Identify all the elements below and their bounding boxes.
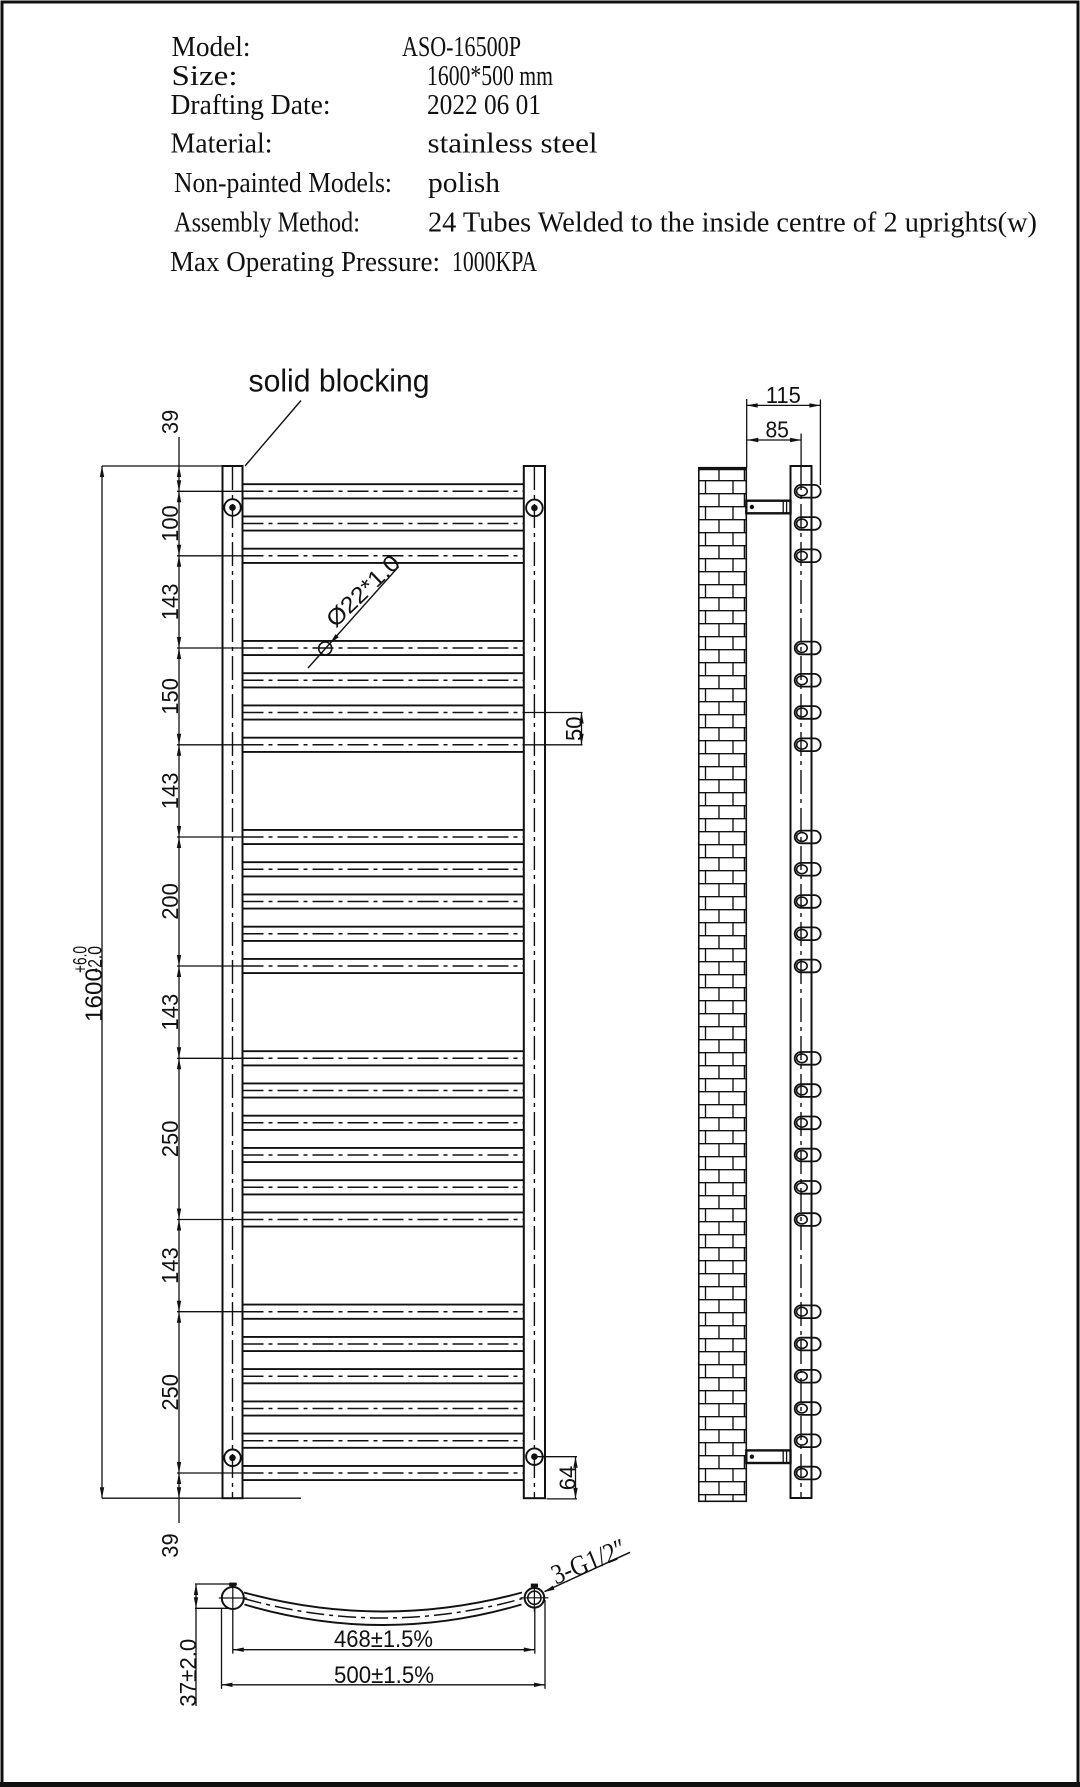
svg-text:Max Operating Pressure:: Max Operating Pressure:: [170, 246, 440, 278]
svg-text:150: 150: [157, 678, 183, 715]
svg-text:39: 39: [157, 410, 183, 434]
svg-text:468±1.5%: 468±1.5%: [334, 1626, 433, 1653]
svg-text:solid blocking: solid blocking: [249, 363, 430, 399]
svg-text:39: 39: [157, 1533, 183, 1557]
svg-text:2022 06 01: 2022 06 01: [427, 89, 541, 121]
svg-text:250: 250: [157, 1121, 183, 1158]
svg-text:1600: 1600: [81, 968, 108, 1022]
svg-text:3-G1/2″: 3-G1/2″: [547, 1533, 631, 1591]
svg-text:stainless steel: stainless steel: [428, 128, 598, 160]
svg-text:85: 85: [765, 417, 789, 443]
svg-text:200: 200: [157, 883, 183, 920]
svg-text:24 Tubes Welded to the inside: 24 Tubes Welded to the inside centre of …: [428, 207, 1037, 239]
svg-text:115: 115: [766, 382, 801, 408]
svg-text:Ø22*1.0: Ø22*1.0: [321, 549, 405, 632]
svg-text:Non-painted Models:: Non-painted Models:: [174, 167, 392, 199]
svg-text:143: 143: [157, 773, 183, 810]
svg-text:500±1.5%: 500±1.5%: [334, 1662, 434, 1689]
svg-text:Size:: Size:: [172, 60, 238, 92]
svg-text:-2.0: -2.0: [86, 946, 107, 973]
svg-text:250: 250: [157, 1374, 183, 1411]
svg-text:polish: polish: [428, 167, 501, 199]
svg-text:Model:: Model:: [172, 31, 251, 63]
svg-text:1600*500 mm: 1600*500 mm: [427, 60, 553, 92]
svg-text:143: 143: [157, 584, 183, 621]
svg-text:143: 143: [157, 1247, 183, 1284]
svg-text:50: 50: [561, 716, 587, 741]
svg-text:143: 143: [157, 994, 183, 1031]
svg-text:1000KPA: 1000KPA: [452, 246, 537, 278]
svg-text:Assembly Method:: Assembly Method:: [174, 207, 360, 239]
svg-text:Material:: Material:: [171, 128, 273, 160]
svg-text:ASO-16500P: ASO-16500P: [402, 31, 521, 63]
svg-text:64: 64: [555, 1466, 581, 1491]
svg-text:37±2.0: 37±2.0: [175, 1639, 201, 1707]
svg-text:Drafting Date:: Drafting Date:: [171, 89, 331, 121]
svg-text:100: 100: [157, 505, 183, 542]
